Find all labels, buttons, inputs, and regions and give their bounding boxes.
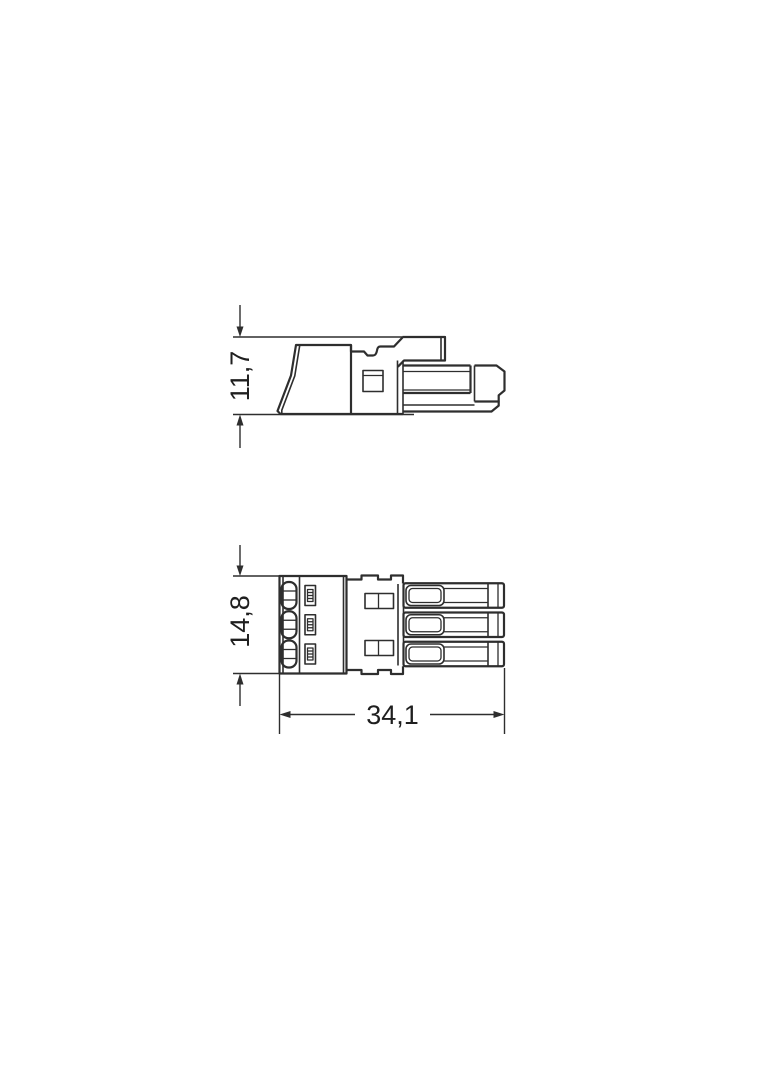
plug-shroud-bottom [403,402,499,412]
latch-outline [398,337,445,367]
dimension-label-height-side: 11,7 [225,351,255,402]
technical-drawing-page: 11,7 [0,0,784,1066]
terminal-row [282,641,316,668]
side-view-plug [403,366,505,412]
dimension-34-1: 34,1 [280,668,505,734]
lock-tab-lower [365,641,394,656]
front-view-prongs [404,583,505,666]
side-view-housing [278,338,404,415]
connector-dimension-drawing: 11,7 [0,0,784,1066]
housing-funnel-inner-line [282,345,300,414]
dimension-11-7: 11,7 [225,305,446,448]
lock-section-bottom-outline [347,666,404,674]
prong-outline [404,642,505,667]
prong-outline [404,583,505,608]
terminal-row [282,582,316,609]
contact-prong [404,642,505,667]
front-view: 14,8 34,1 [225,545,505,734]
arrowhead-down-icon [237,327,244,338]
contact-prong [404,583,505,608]
lock-section-top-outline [347,576,404,584]
terminal-row [282,611,316,638]
contact-prong [404,613,505,638]
arrowhead-up-icon [237,415,244,426]
arrowhead-down-icon [237,566,244,577]
arrowhead-left-icon [280,711,291,718]
housing-top-step-profile [351,338,403,356]
arrowhead-up-icon [237,674,244,685]
dimension-14-8: 14,8 [225,545,280,706]
prong-outline [404,613,505,638]
dimension-label-height-front: 14,8 [225,595,255,648]
lock-tab-upper [365,594,394,609]
dimension-label-length: 34,1 [366,700,419,730]
contact-opening-inner [409,647,441,661]
housing-window [363,371,383,392]
front-view-lock-section [347,576,404,675]
side-view: 11,7 [225,305,505,448]
side-view-latch [398,337,446,414]
housing-outline [278,345,352,414]
arrowhead-right-icon [494,711,505,718]
plug-end-cap [475,366,505,402]
contact-opening-inner [409,589,441,603]
contact-opening-inner [409,618,441,632]
front-view-housing [280,576,347,674]
